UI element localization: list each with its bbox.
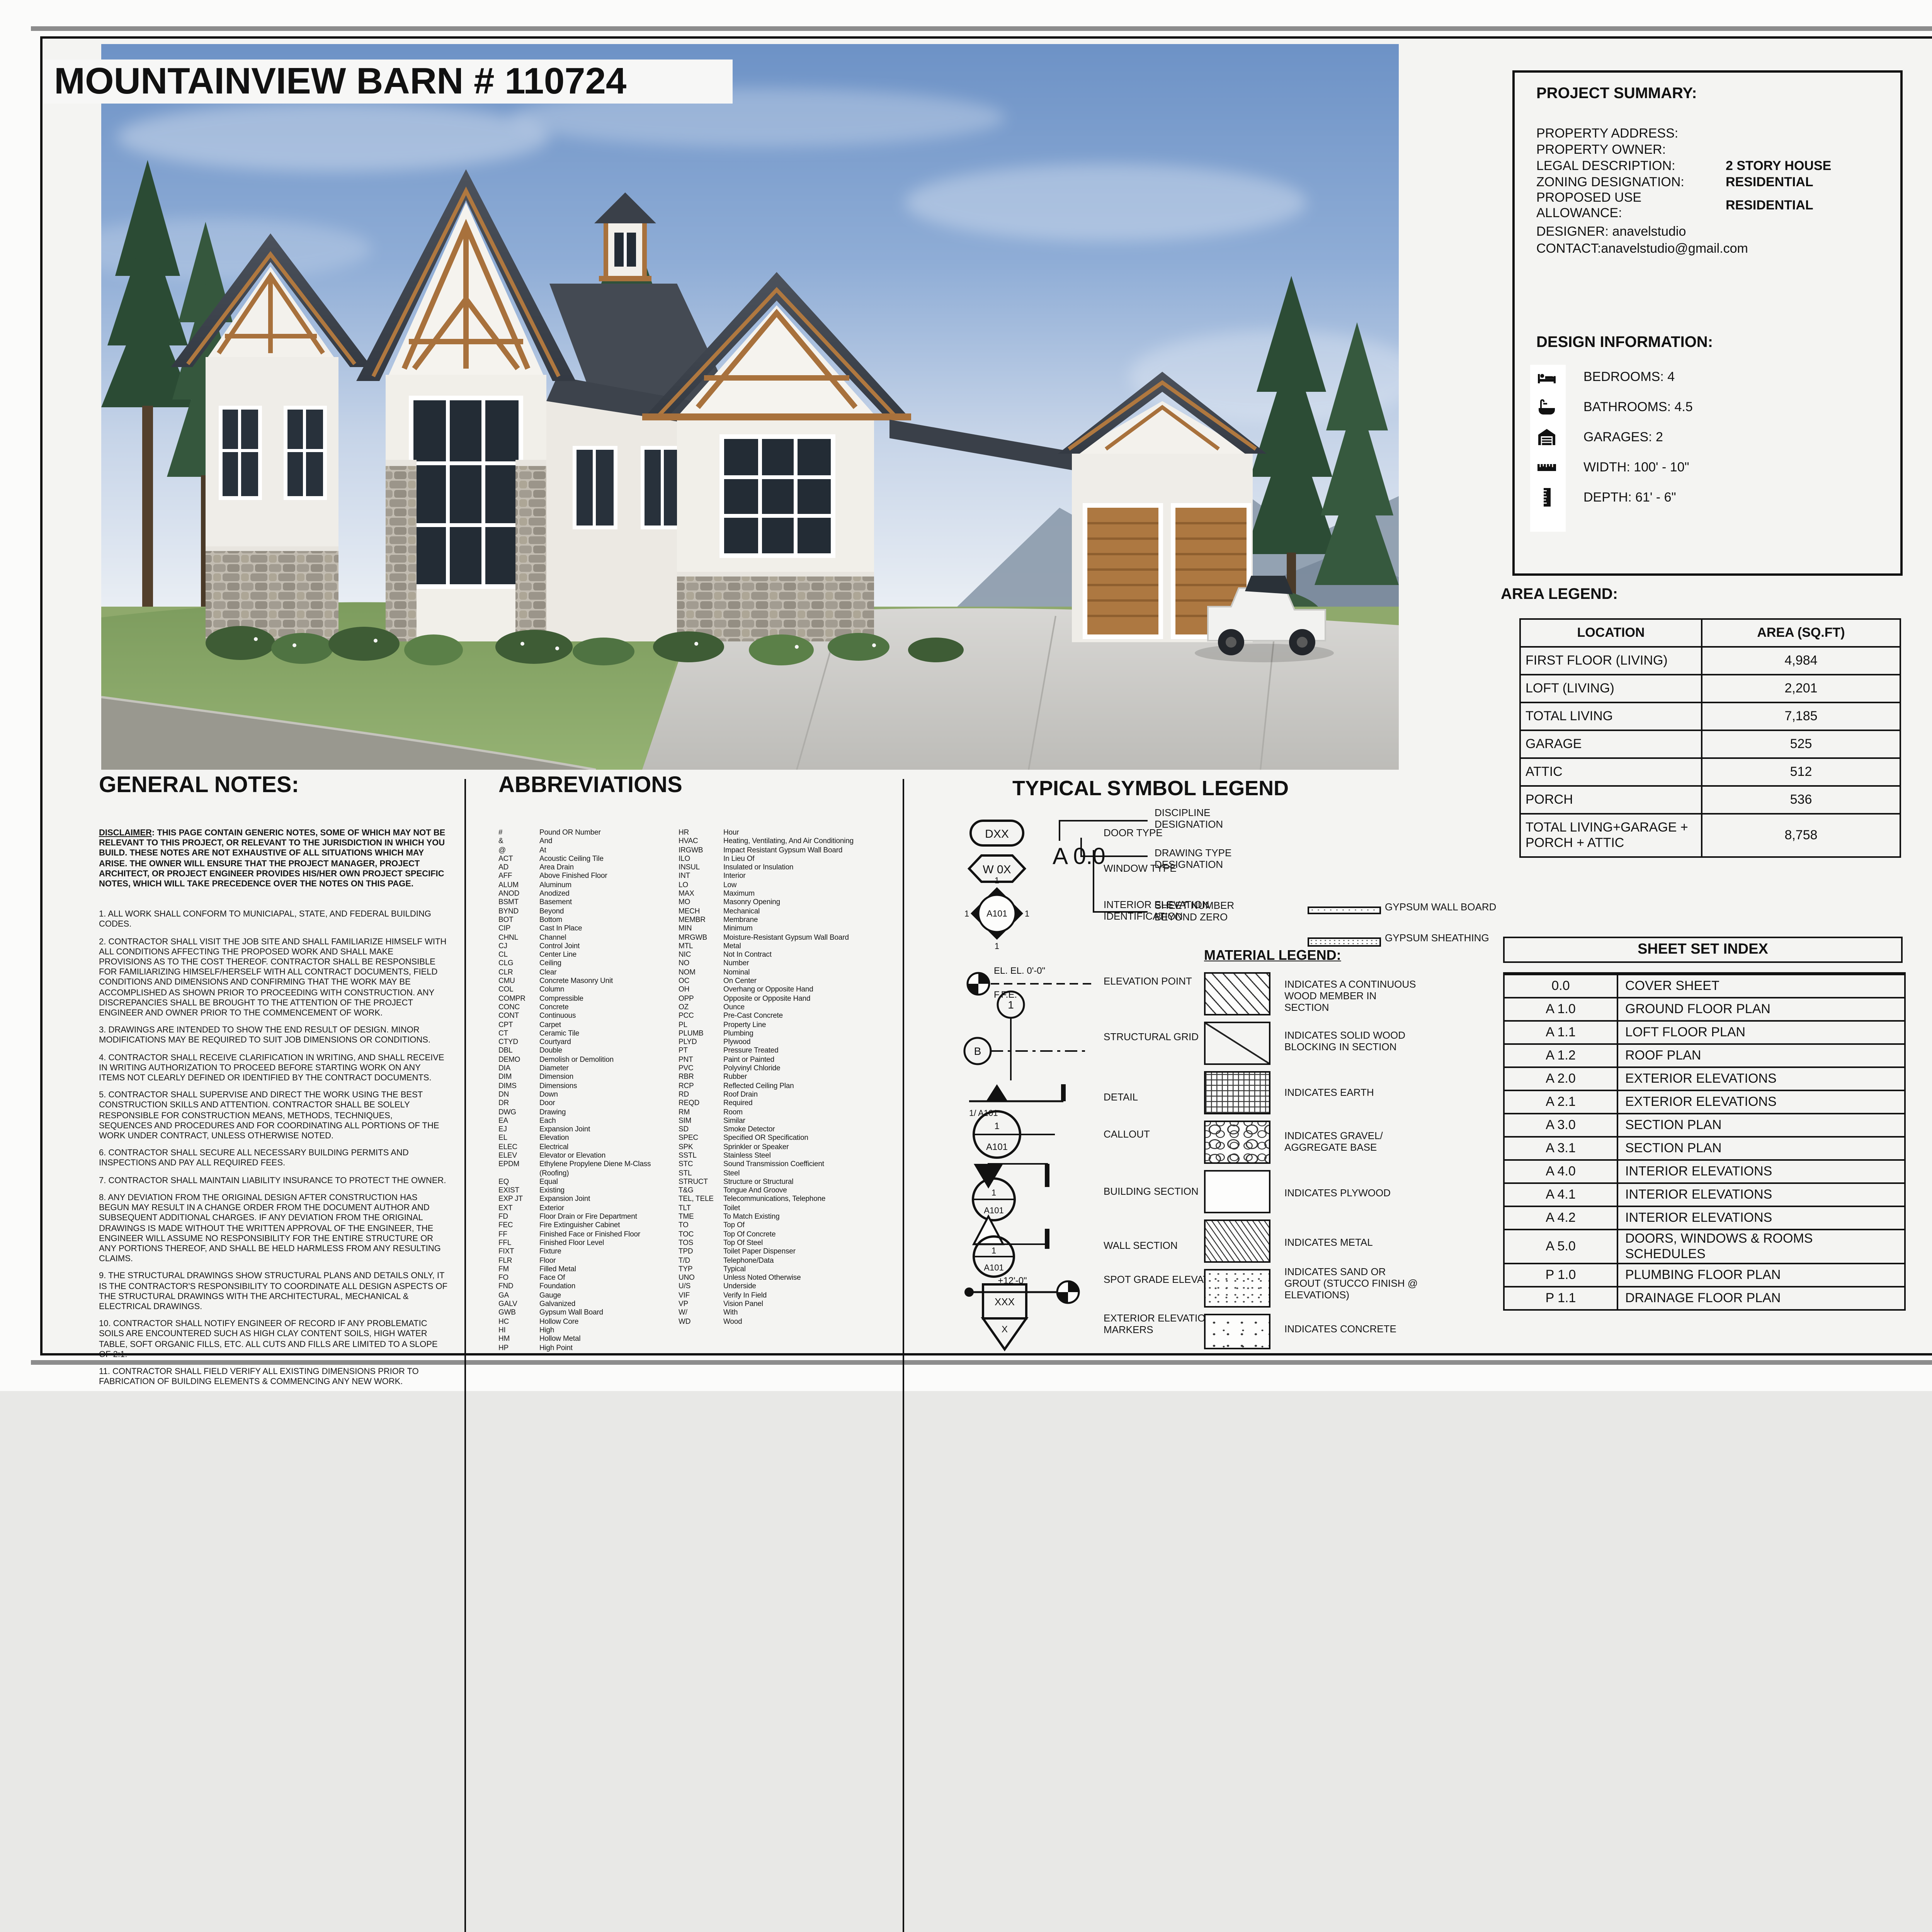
svg-text:A101: A101 [986,908,1007,918]
abbreviation-row: BSMTBasement [498,898,673,907]
abbreviation-row: ILOIn Lieu Of [679,855,900,864]
material-label: INDICATES CONCRETE [1284,1323,1422,1335]
table-row: A 2.0EXTERIOR ELEVATIONS [1505,1066,1904,1090]
title-band: MOUNTAINVIEW BARN # 110724 [43,60,733,104]
abbreviation-row: CLCenter Line [498,951,673,959]
svg-text:B: B [974,1045,981,1057]
abbreviation-row: ELECElectrical [498,1143,673,1151]
drawing-type-label: DRAWING TYPE DESIGNATION [1155,847,1247,870]
abbreviation-row: OCOn Center [679,977,900,986]
note-item: 4. CONTRACTOR SHALL RECEIVE CLARIFICATIO… [99,1053,448,1083]
svg-text:1: 1 [994,1121,999,1131]
abbreviation-row: DIMDimension [498,1073,673,1082]
abbreviation-row: OZOunce [679,1003,900,1012]
abbreviation-row: SPECSpecified OR Specification [679,1134,900,1143]
table-row: A 1.0GROUND FLOOR PLAN [1505,997,1904,1020]
summary-row: ZONING DESIGNATION:RESIDENTIAL [1536,174,1884,190]
gravel-swatch [1204,1121,1270,1164]
abbreviation-row: CMUConcrete Masonry Unit [498,977,673,986]
abbreviation-row: GAGauge [498,1291,673,1300]
abbreviation-row: STRUCTStructure or Structural [679,1178,900,1187]
abbreviation-row: STLSteel [679,1169,900,1178]
abbreviation-row: RBRRubber [679,1073,900,1082]
abbreviation-row: OPPOpposite or Opposite Hand [679,994,900,1003]
general-notes-heading: GENERAL NOTES: [99,773,299,798]
abbreviation-row: TMETo Match Existing [679,1213,900,1221]
abbreviation-row: TOTop Of [679,1221,900,1230]
note-item: 1. ALL WORK SHALL CONFORM TO MUNICIAPAL,… [99,910,448,930]
abbreviation-row: EJExpansion Joint [498,1125,673,1134]
abbreviation-row: T&GTongue And Groove [679,1186,900,1195]
abbreviation-row: FNDFoundation [498,1282,673,1291]
abbreviation-row: COLColumn [498,986,673,995]
area-legend-heading: AREA LEGEND: [1501,586,1618,604]
table-row: A 4.0INTERIOR ELEVATIONS [1505,1159,1904,1182]
abbreviation-row: WDWood [679,1317,900,1326]
material-label: INDICATES A CONTINUOUS WOOD MEMBER IN SE… [1284,978,1422,1013]
page-title: MOUNTAINVIEW BARN # 110724 [43,60,626,103]
abbreviation-row: #Pound OR Number [498,828,673,837]
abbreviation-row: IRGWBImpact Resistant Gypsum Wall Board [679,846,900,855]
abbreviations-col1: #Pound OR Number&And@AtACTAcoustic Ceili… [498,828,673,1352]
abbreviation-row: VIFVerify In Field [679,1291,900,1300]
table-row: TOTAL LIVING7,185 [1521,702,1900,730]
table-row: ATTIC512 [1521,757,1900,785]
area-header-row: LOCATION AREA (SQ.FT) [1521,620,1900,646]
abbreviation-row: GWBGypsum Wall Board [498,1309,673,1318]
project-summary-panel: PROJECT SUMMARY: PROPERTY ADDRESS: PROPE… [1512,70,1903,576]
summary-row: PROPERTY OWNER: [1536,141,1884,158]
abbreviation-row: PCCPre-Cast Concrete [679,1012,900,1020]
bathrooms-row: BATHROOMS: 4.5 [1536,396,1693,417]
abbreviation-row: VPVision Panel [679,1300,900,1309]
abbreviation-row: CLRClear [498,968,673,977]
abbreviations-col2: HRHourHVACHeating, Ventilating, And Air … [679,828,900,1326]
abbreviation-row: SIMSimilar [679,1117,900,1126]
abbreviation-row: DEMODemolish or Demolition [498,1055,673,1064]
width-ruler-icon [1536,457,1557,478]
table-row: 0.0COVER SHEET [1505,974,1904,997]
exterior-rendering [101,44,1399,770]
abbreviation-row: HPHigh Point [498,1344,673,1352]
abbreviation-row: EXP JTExpansion Joint [498,1195,673,1204]
table-row: A 3.1SECTION PLAN [1505,1136,1904,1159]
abbreviation-row: MRGWBMoisture-Resistant Gypsum Wall Boar… [679,933,900,942]
table-row: P 1.1DRAINAGE FLOOR PLAN [1505,1286,1904,1309]
abbreviation-row: HCHollow Core [498,1317,673,1326]
abbreviation-row: UNOUnless Noted Otherwise [679,1274,900,1282]
abbreviation-row: COMPRCompressible [498,994,673,1003]
abbreviation-row: CJControl Joint [498,942,673,951]
abbreviation-row: HMHollow Metal [498,1335,673,1344]
table-row: FIRST FLOOR (LIVING)4,984 [1521,646,1900,674]
sheet-set-index-heading-box: SHEET SET INDEX [1503,937,1903,963]
earth-swatch [1204,1071,1270,1114]
abbreviation-row: ACTAcoustic Ceiling Tile [498,855,673,864]
abbreviation-row: FDFloor Drain or Fire Department [498,1213,673,1221]
material-label: INDICATES SOLID WOOD BLOCKING IN SECTION [1284,1029,1422,1053]
abbreviation-row: FOFace Of [498,1274,673,1282]
note-item: 6. CONTRACTOR SHALL SECURE ALL NECESSARY… [99,1149,448,1169]
svg-text:W 0X: W 0X [983,863,1011,876]
svg-text:X: X [1002,1324,1008,1335]
abbreviation-row: MAXMaximum [679,889,900,898]
material-label: INDICATES GRAVEL/ AGGREGATE BASE [1284,1130,1422,1153]
abbreviation-row: REQDRequired [679,1099,900,1108]
abbreviation-row: PLProperty Line [679,1020,900,1029]
disclaimer: DISCLAIMER: THIS PAGE CONTAIN GENERIC NO… [99,828,448,889]
continuous-wood-swatch [1204,972,1270,1015]
abbreviation-row: MTLMetal [679,942,900,951]
abbreviation-row: ADArea Drain [498,863,673,872]
bathtub-icon [1536,396,1557,417]
table-row: A 1.2ROOF PLAN [1505,1043,1904,1066]
abbreviation-row: MINMinimum [679,925,900,934]
abbreviations-heading: ABBREVIATIONS [498,773,682,798]
width-row: WIDTH: 100' - 10" [1536,457,1689,478]
material-label: INDICATES SAND OR GROUT (STUCCO FINISH @… [1284,1266,1422,1301]
sheet-set-index-table: 0.0COVER SHEET A 1.0GROUND FLOOR PLAN A … [1503,972,1906,1311]
door-type-symbol: DXX [968,818,1026,852]
note-item: 2. CONTRACTOR SHALL VISIT THE JOB SITE A… [99,937,448,1019]
abbreviation-row: INSULInsulated or Insulation [679,863,900,872]
material-label: INDICATES PLYWOOD [1284,1187,1422,1199]
col-area: AREA (SQ.FT) [1702,625,1900,641]
abbreviation-row: PVCPolyvinyl Chloride [679,1064,900,1073]
abbreviation-row: FFFinished Face or Finished Floor [498,1230,673,1239]
abbreviation-row: MOMasonry Opening [679,898,900,907]
symbol-legend-heading: TYPICAL SYMBOL LEGEND [1012,777,1289,801]
general-notes: DISCLAIMER: THIS PAGE CONTAIN GENERIC NO… [99,828,448,1395]
svg-text:A101: A101 [986,1142,1008,1152]
rendering-illustration [101,44,1399,770]
abbreviation-row: DWGDrawing [498,1108,673,1117]
abbreviation-row: ELEVElevator or Elevation [498,1151,673,1160]
abbreviation-row: DBLDouble [498,1047,673,1056]
abbreviation-row: INTInterior [679,872,900,881]
metal-swatch [1204,1219,1270,1263]
svg-text:1: 1 [1008,999,1014,1011]
abbreviation-row: CTCeramic Tile [498,1029,673,1038]
note-item: 8. ANY DEVIATION FROM THE ORIGINAL DESIG… [99,1193,448,1265]
abbreviation-row: BYNDBeyond [498,907,673,916]
svg-text:DXX: DXX [985,828,1009,840]
abbreviation-row: PTPressure Treated [679,1047,900,1056]
abbreviation-row: AFFAbove Finished Floor [498,872,673,881]
abbreviation-row: TEL, TELETelecommunications, Telephone [679,1195,900,1204]
top-trim-band [31,26,1932,31]
gypsum-wall-board-swatch2 [1308,906,1381,914]
abbreviation-row: EXISTExisting [498,1186,673,1195]
exterior-elevation-symbol: XXX X [975,1281,1034,1359]
note-item: 7. CONTRACTOR SHALL MAINTAIN LIABILITY I… [99,1176,448,1186]
table-row: PORCH536 [1521,785,1900,813]
area-legend-table: LOCATION AREA (SQ.FT) FIRST FLOOR (LIVIN… [1519,618,1901,858]
svg-text:XXX: XXX [995,1296,1015,1308]
abbreviation-row: DNDown [498,1090,673,1099]
col-location: LOCATION [1521,620,1702,646]
sheet-set-index-heading: SHEET SET INDEX [1638,941,1768,958]
table-row: LOFT (LIVING)2,201 [1521,674,1900,702]
note-item: 10. CONTRACTOR SHALL NOTIFY ENGINEER OF … [99,1319,448,1360]
material-label: INDICATES METAL [1284,1236,1422,1248]
plywood-swatch [1204,1170,1270,1213]
abbreviation-row: DIADiameter [498,1064,673,1073]
garages-row: GARAGES: 2 [1536,427,1663,447]
note-item: 3. DRAWINGS ARE INTENDED TO SHOW THE END… [99,1026,448,1046]
abbreviation-row: RCPReflected Ceiling Plan [679,1082,900,1090]
table-row: GARAGE525 [1521,730,1900,757]
abbreviation-row: SSTLStainless Steel [679,1151,900,1160]
abbreviation-row: SDSmoke Detector [679,1125,900,1134]
abbreviation-row: &And [498,837,673,846]
abbreviation-row: PNTPaint or Painted [679,1055,900,1064]
abbreviation-row: EXTExterior [498,1204,673,1213]
material-label: GYPSUM WALL BOARD [1385,901,1501,913]
abbreviation-row: DIMSDimensions [498,1082,673,1090]
abbreviation-row: EAEach [498,1117,673,1126]
abbreviation-row: BOTBottom [498,916,673,925]
abbreviation-row: TOCTop Of Concrete [679,1230,900,1239]
contact-line: CONTACT:anavelstudio@gmail.com [1536,241,1748,257]
material-legend-heading: MATERIAL LEGEND: [1204,947,1341,964]
note-item: 11. CONTRACTOR SHALL FIELD VERIFY ALL EX… [99,1367,448,1388]
abbreviation-row: EQEqual [498,1178,673,1187]
summary-row: PROPOSED USE ALLOWANCE:RESIDENTIAL [1536,190,1884,206]
note-item: 5. CONTRACTOR SHALL SUPERVISE AND DIRECT… [99,1091,448,1142]
svg-text:EL. EL. 0'-0": EL. EL. 0'-0" [994,966,1045,976]
abbreviation-row: PLUMBPlumbing [679,1029,900,1038]
abbreviation-row: TLTToilet [679,1204,900,1213]
sand-grout-swatch [1204,1269,1270,1308]
abbreviation-row: CHNLChannel [498,933,673,942]
gypsum-sheathing-swatch [1308,937,1381,947]
abbreviation-row: FFLFinished Floor Level [498,1239,673,1248]
table-row: A 4.2INTERIOR ELEVATIONS [1505,1206,1904,1229]
abbreviation-row: T/DTelephone/Data [679,1256,900,1265]
abbreviation-row: CTYDCourtyard [498,1038,673,1047]
abbreviation-row: ELElevation [498,1134,673,1143]
svg-text:1: 1 [992,1246,996,1255]
abbreviation-row: TOSTop Of Steel [679,1239,900,1248]
abbreviation-row: EPDMEthylene Propylene Diene M-Class (Ro… [498,1160,673,1178]
abbreviation-row: RMRoom [679,1108,900,1117]
summary-row: PROPERTY ADDRESS: [1536,125,1884,141]
discipline-designation-label: DISCIPLINE DESIGNATION [1155,807,1247,830]
abbreviation-row: ALUMAluminum [498,881,673,890]
bedrooms-row: BEDROOMS: 4 [1536,366,1675,387]
sheet-number-label: SHEET NUMBER BEYOND ZERO [1155,900,1247,923]
design-information-heading: DESIGN INFORMATION: [1536,334,1713,352]
project-summary-fields: PROPERTY ADDRESS: PROPERTY OWNER: LEGAL … [1536,125,1884,206]
table-row: P 1.0PLUMBING FLOOR PLAN [1505,1263,1904,1286]
abbreviation-row: OHOverhang or Opposite Hand [679,986,900,995]
garage-icon [1536,427,1557,447]
abbreviation-row: W/With [679,1309,900,1318]
cover-sheet: MOUNTAINVIEW BARN # 110724 GENERAL NOTES… [0,0,1932,1391]
abbreviation-row: HIHigh [498,1326,673,1335]
table-row: A 4.1INTERIOR ELEVATIONS [1505,1182,1904,1206]
concrete-swatch [1204,1314,1270,1349]
abbreviation-row: DRDoor [498,1099,673,1108]
abbreviation-row: TPDToilet Paper Dispenser [679,1248,900,1257]
depth-ruler-icon [1536,487,1557,508]
material-label: INDICATES EARTH [1284,1087,1422,1098]
abbreviation-row: NONumber [679,959,900,968]
designer-line: DESIGNER: anavelstudio [1536,224,1686,240]
sheet-designation-leaders [1047,810,1151,930]
svg-text:1: 1 [992,1188,996,1197]
abbreviation-row: TYPTypical [679,1265,900,1274]
abbreviation-row: CIPCast In Place [498,925,673,934]
table-row: A 2.1EXTERIOR ELEVATIONS [1505,1090,1904,1113]
table-row: TOTAL LIVING+GARAGE + PORCH + ATTIC8,758 [1521,813,1900,856]
abbreviation-row: CLGCeiling [498,959,673,968]
table-row: A 3.0SECTION PLAN [1505,1113,1904,1136]
abbreviation-row: SPKSprinkler or Speaker [679,1143,900,1151]
depth-row: DEPTH: 61' - 6" [1536,487,1676,508]
abbreviation-row: @At [498,846,673,855]
svg-text:1: 1 [995,876,999,885]
abbreviation-row: NOMNominal [679,968,900,977]
abbreviation-row: CONCConcrete [498,1003,673,1012]
abbreviation-row: ANODAnodized [498,889,673,898]
abbreviation-row: MEMBRMembrane [679,916,900,925]
abbreviation-row: NICNot In Contract [679,951,900,959]
structural-grid-symbol: 1 B [963,988,1090,1090]
abbreviation-row: CONTContinuous [498,1012,673,1020]
table-row: A 5.0DOORS, WINDOWS & ROOMS SCHEDULES [1505,1229,1904,1263]
abbreviation-row: PLYDPlywood [679,1038,900,1047]
table-row: A 1.1LOFT FLOOR PLAN [1505,1020,1904,1043]
notes-list: 1. ALL WORK SHALL CONFORM TO MUNICIAPAL,… [99,910,448,1387]
solid-wood-blocking-swatch [1204,1022,1270,1065]
abbreviation-row: FIXTFixture [498,1248,673,1257]
abbreviation-row: LOLow [679,881,900,890]
abbreviation-row: MECHMechanical [679,907,900,916]
abbreviation-row: FMFilled Metal [498,1265,673,1274]
abbreviation-row: FECFire Extinguisher Cabinet [498,1221,673,1230]
svg-text:1: 1 [964,909,969,918]
project-summary-heading: PROJECT SUMMARY: [1536,85,1697,103]
bed-icon [1536,366,1557,387]
svg-text:1: 1 [1025,909,1029,918]
abbreviation-row: FLRFloor [498,1256,673,1265]
abbreviation-row: HRHour [679,828,900,837]
abbreviation-row: RDRoof Drain [679,1090,900,1099]
abbreviation-row: GALVGalvanized [498,1300,673,1309]
svg-text:1: 1 [995,941,999,951]
interior-elevation-symbol: 1 1 1 1 A101 [960,875,1034,954]
abbreviation-row: CPTCarpet [498,1020,673,1029]
summary-row: LEGAL DESCRIPTION:2 STORY HOUSE [1536,158,1884,174]
material-label: GYPSUM SHEATHING [1385,932,1501,944]
abbreviation-row: STCSound Transmission Coefficient [679,1160,900,1169]
abbreviation-row: U/SUnderside [679,1282,900,1291]
abbreviation-row: HVACHeating, Ventilating, And Air Condit… [679,837,900,846]
note-item: 9. THE STRUCTURAL DRAWINGS SHOW STRUCTUR… [99,1272,448,1313]
